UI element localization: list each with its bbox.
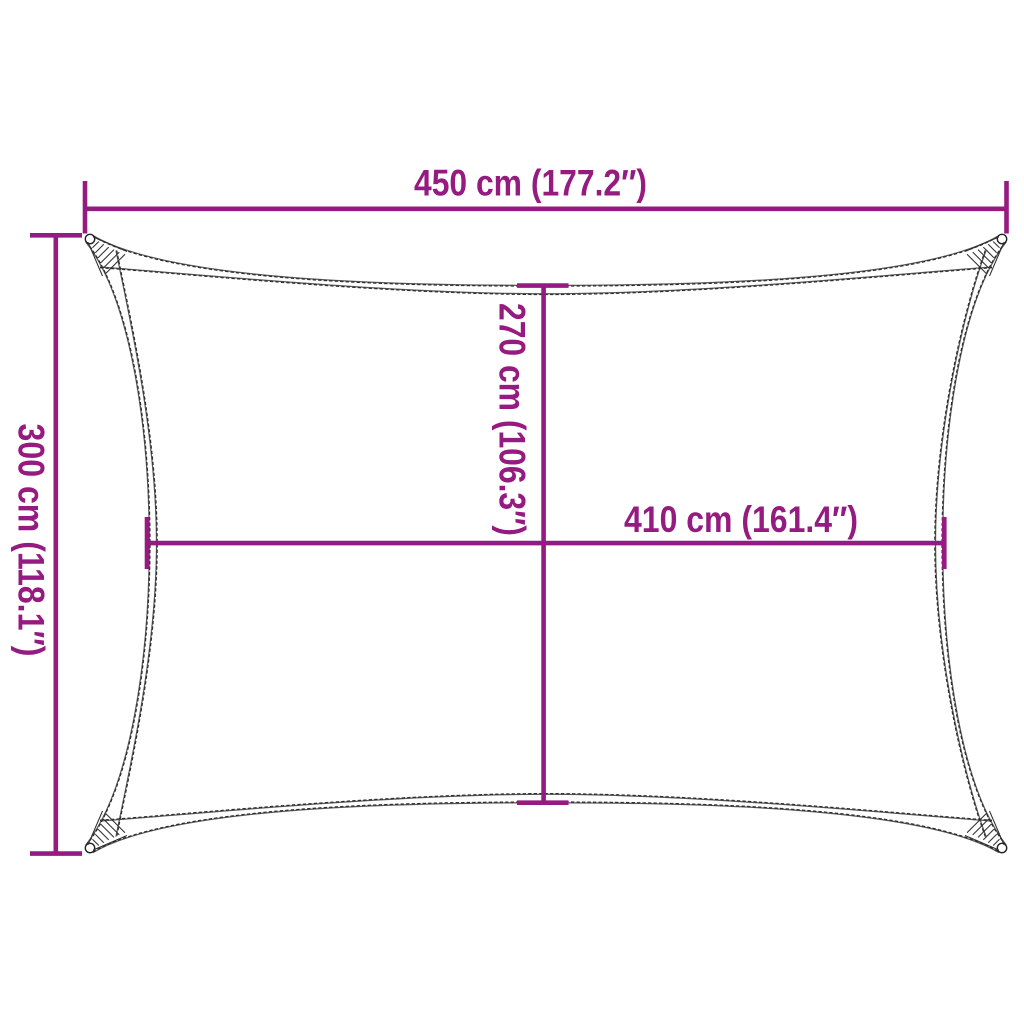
svg-text:410 cm (161.4″): 410 cm (161.4″) <box>624 499 858 540</box>
svg-text:450 cm (177.2″): 450 cm (177.2″) <box>414 163 647 204</box>
svg-text:270 cm (106.3″): 270 cm (106.3″) <box>492 303 533 536</box>
svg-text:300 cm (118.1″): 300 cm (118.1″) <box>11 424 52 657</box>
